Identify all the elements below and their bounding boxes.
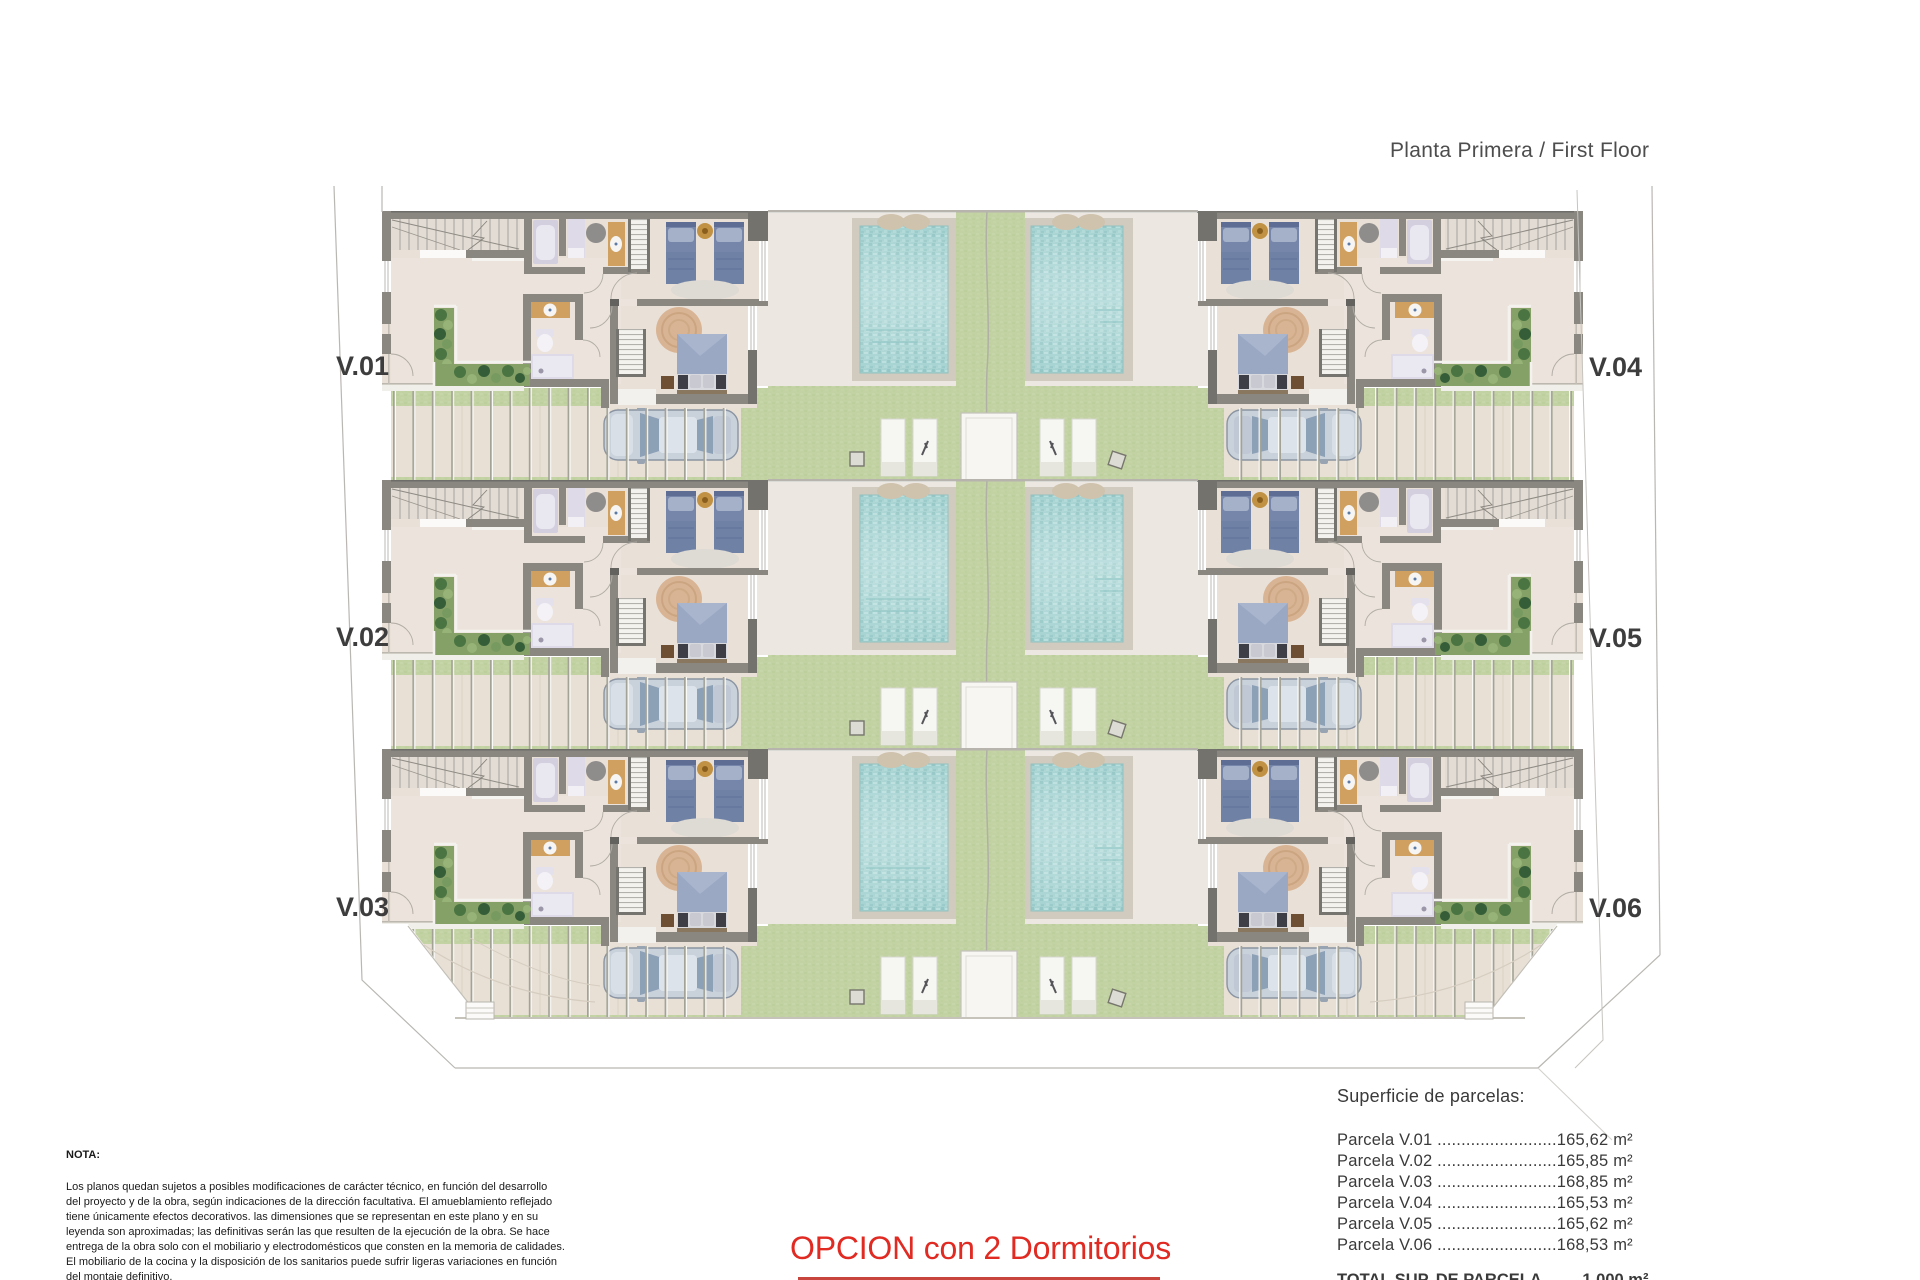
svg-text:NOTA:: NOTA:	[66, 1149, 100, 1161]
svg-text:Parcela V.03 ................: Parcela V.03 .........................16…	[1337, 1173, 1633, 1191]
svg-text:V.06: V.06	[1589, 893, 1642, 923]
svg-text:V.05: V.05	[1589, 623, 1642, 653]
svg-text:Parcela V.05 ................: Parcela V.05 .........................16…	[1337, 1215, 1633, 1233]
svg-text:V.04: V.04	[1589, 352, 1642, 382]
svg-text:del proyecto y de la obra, seg: del proyecto y de la obra, según indicac…	[66, 1196, 552, 1208]
svg-text:TOTAL SUP. DE PARCELA ........: TOTAL SUP. DE PARCELA ........1.000 m²	[1337, 1271, 1649, 1280]
svg-text:entrega de la obra solo con el: entrega de la obra solo con el mobiliari…	[66, 1241, 565, 1253]
svg-text:leyenda son aproximadas; las d: leyenda son aproximadas; las definitivas…	[66, 1226, 550, 1238]
svg-text:OPCION con 2 Dormitorios: OPCION con 2 Dormitorios	[790, 1230, 1171, 1266]
svg-text:Planta Primera / First Floor: Planta Primera / First Floor	[1390, 139, 1649, 162]
svg-text:V.02: V.02	[336, 622, 389, 652]
svg-text:Los planos quedan sujetos a po: Los planos quedan sujetos a posibles mod…	[66, 1181, 547, 1193]
svg-text:El mobiliario de la cocina y l: El mobiliario de la cocina y la disposic…	[66, 1256, 557, 1268]
svg-text:V.01: V.01	[336, 351, 389, 381]
svg-text:del montaje definitivo.: del montaje definitivo.	[66, 1271, 172, 1280]
svg-text:V.03: V.03	[336, 892, 389, 922]
svg-text:Parcela V.02 ................: Parcela V.02 .........................16…	[1337, 1152, 1633, 1170]
svg-text:Superficie de parcelas:: Superficie de parcelas:	[1337, 1086, 1525, 1106]
svg-text:tiene únicamente efectos decor: tiene únicamente efectos decorativos. la…	[66, 1211, 538, 1223]
svg-text:Parcela V.04 ................: Parcela V.04 .........................16…	[1337, 1194, 1633, 1212]
svg-text:Parcela V.06 ................: Parcela V.06 .........................16…	[1337, 1236, 1633, 1254]
svg-text:Parcela V.01 ................: Parcela V.01 .........................16…	[1337, 1131, 1633, 1149]
